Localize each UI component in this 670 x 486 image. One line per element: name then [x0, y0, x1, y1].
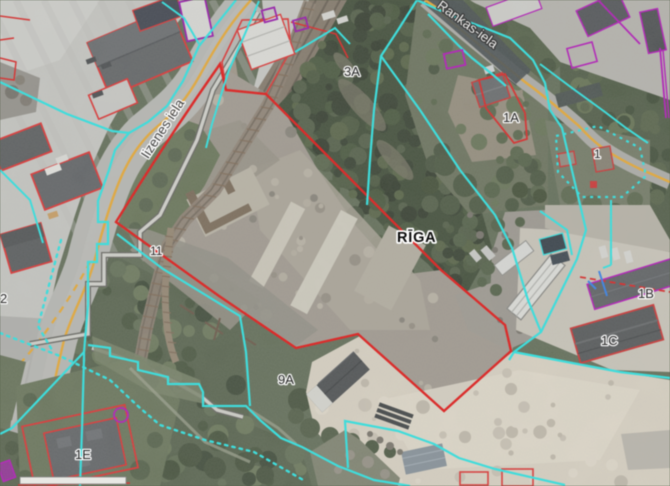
- svg-text:2: 2: [0, 291, 7, 306]
- svg-text:1: 1: [594, 147, 601, 161]
- svg-text:1E: 1E: [75, 447, 91, 462]
- svg-text:11: 11: [150, 244, 163, 258]
- svg-text:3A: 3A: [344, 64, 360, 79]
- svg-text:1B: 1B: [638, 286, 654, 301]
- svg-text:1C: 1C: [601, 333, 618, 348]
- svg-text:9A: 9A: [278, 372, 294, 387]
- svg-text:RĪGA: RĪGA: [397, 229, 436, 246]
- svg-text:1A: 1A: [503, 110, 519, 125]
